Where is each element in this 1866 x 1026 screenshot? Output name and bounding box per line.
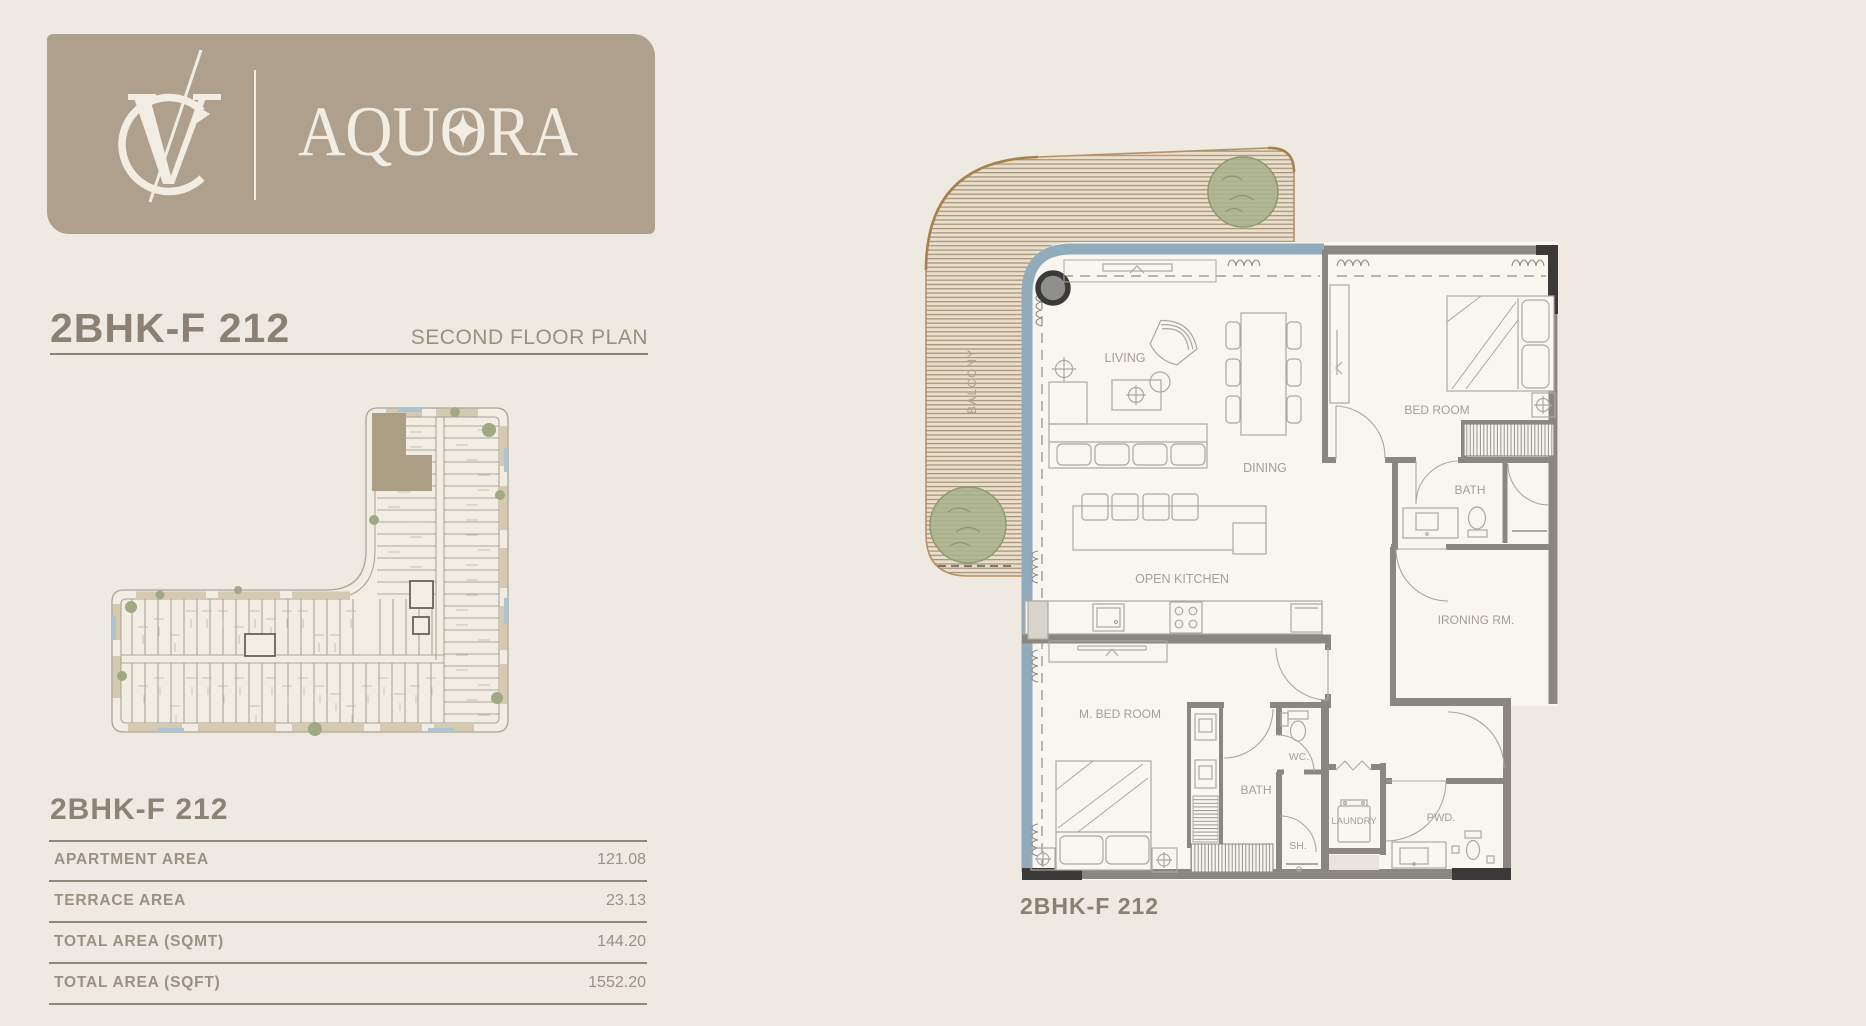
svg-text:2BHK-F 212: 2BHK-F 212	[1020, 893, 1159, 919]
svg-text:LIVING: LIVING	[1105, 351, 1146, 365]
svg-text:DINING: DINING	[1243, 461, 1287, 475]
svg-text:AQUORA: AQUORA	[298, 93, 578, 171]
svg-text:WC.: WC.	[1289, 751, 1309, 763]
svg-text:PWD.: PWD.	[1427, 812, 1456, 824]
svg-text:BALCONY: BALCONY	[967, 348, 979, 413]
svg-text:LAUNDRY: LAUNDRY	[1331, 816, 1377, 827]
svg-text:BED ROOM: BED ROOM	[1404, 403, 1469, 417]
svg-text:BATH: BATH	[1454, 483, 1485, 497]
svg-text:BATH: BATH	[1240, 783, 1271, 797]
svg-text:SH.: SH.	[1289, 840, 1307, 852]
svg-text:OPEN KITCHEN: OPEN KITCHEN	[1135, 572, 1229, 586]
svg-text:M. BED ROOM: M. BED ROOM	[1079, 707, 1161, 721]
svg-text:IRONING RM.: IRONING RM.	[1438, 613, 1515, 627]
